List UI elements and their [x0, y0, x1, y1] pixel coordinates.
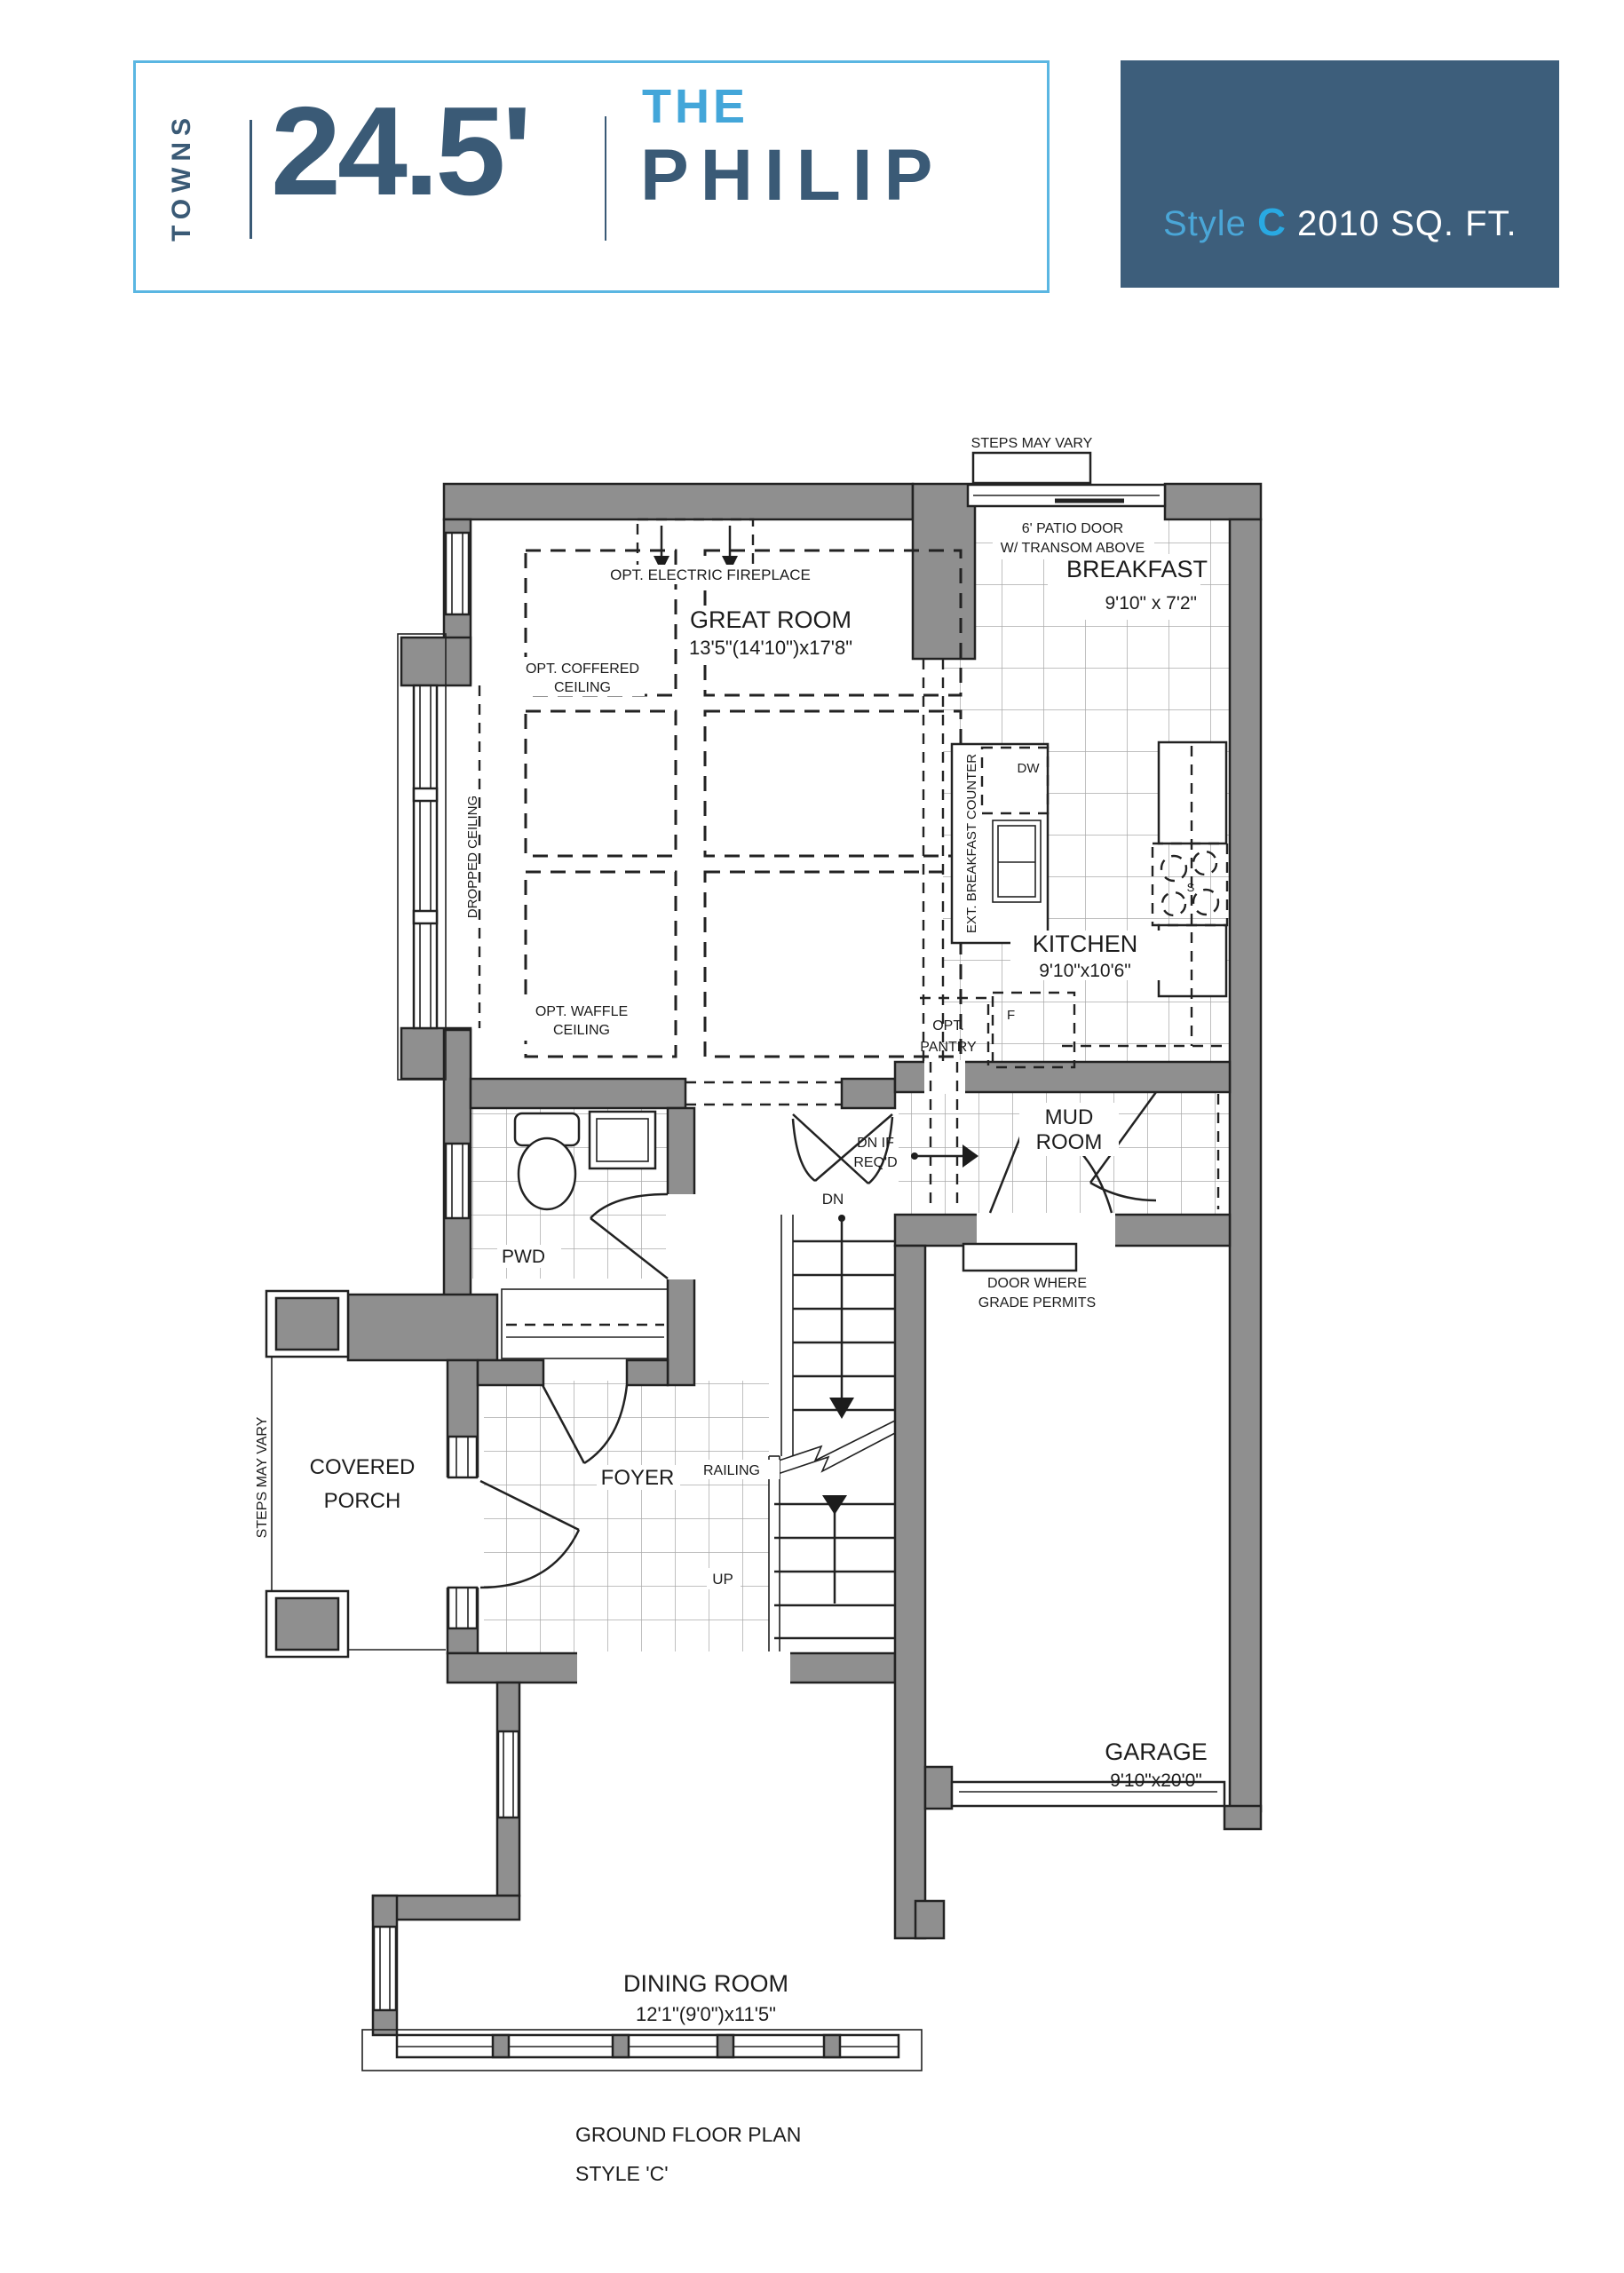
label-door-grade-1: DOOR WHERE — [987, 1276, 1087, 1291]
label-covered-porch-2: PORCH — [324, 1489, 401, 1513]
label-covered-porch-1: COVERED — [310, 1455, 416, 1479]
label-patio-door-2: W/ TRANSOM ABOVE — [1001, 541, 1145, 556]
label-dw: DW — [1018, 761, 1041, 776]
label-garage: GARAGE — [1105, 1738, 1208, 1765]
label-mud-room-1: MUD — [1045, 1105, 1094, 1129]
window — [446, 1144, 469, 1218]
dining-bay-windows — [362, 2030, 922, 2071]
label-stove: S — [1187, 881, 1195, 894]
label-dining-dims: 12'1"(9'0")x11'5" — [636, 2003, 776, 2025]
foyer-floor — [484, 1381, 769, 1653]
foyer-closet — [502, 1289, 668, 1358]
label-dining: DINING ROOM — [623, 1970, 788, 1997]
label-pwd: PWD — [502, 1247, 545, 1267]
label-foyer: FOYER — [601, 1466, 675, 1490]
label-opt-pantry-1: OPT. — [932, 1018, 964, 1034]
label-kitchen: KITCHEN — [1033, 931, 1138, 957]
bay-window — [414, 685, 437, 1028]
stair-break-line — [772, 1433, 895, 1476]
label-great-room-dims: 13'5"(14'10")x17'8" — [689, 637, 852, 659]
label-opt-coffered-1: OPT. COFFERED — [526, 661, 639, 677]
toilet — [515, 1113, 579, 1209]
staircase — [765, 1215, 895, 1651]
label-opt-coffered-2: CEILING — [554, 680, 611, 695]
label-kitchen-dims: 9'10"x10'6" — [1039, 961, 1131, 981]
window — [498, 1731, 519, 1818]
porch-pillar — [266, 1291, 348, 1357]
label-fridge: F — [1007, 1008, 1015, 1023]
label-breakfast-dims: 9'10" x 7'2" — [1105, 593, 1198, 614]
label-railing: RAILING — [703, 1463, 760, 1478]
pwd-sink — [590, 1112, 655, 1168]
steps-outline — [973, 453, 1090, 483]
patio-door — [968, 453, 1165, 506]
label-dropped-ceiling: DROPPED CEILING — [465, 796, 480, 918]
floor-plan: STEPS MAY VARY 6' PATIO DOOR W/ TRANSOM … — [0, 0, 1624, 2273]
label-great-room: GREAT ROOM — [690, 606, 852, 633]
railing — [769, 1456, 780, 1651]
window — [446, 533, 469, 614]
label-dn-if-reqd-2: REQ'D — [853, 1155, 897, 1170]
label-opt-pantry-2: PANTRY — [920, 1040, 977, 1055]
porch-pillar — [266, 1591, 348, 1657]
label-footer-1: GROUND FLOOR PLAN — [575, 2123, 801, 2146]
label-steps-top: STEPS MAY VARY — [971, 436, 1093, 451]
label-opt-waffle-2: CEILING — [553, 1023, 610, 1038]
page: { "header": { "series": "TOWNS", "width_… — [0, 0, 1624, 2273]
label-dn: DN — [822, 1191, 844, 1208]
label-up: UP — [712, 1571, 733, 1588]
label-dn-if-reqd-1: DN IF — [857, 1136, 894, 1151]
window — [374, 1927, 396, 2010]
label-patio-door-1: 6' PATIO DOOR — [1022, 521, 1123, 536]
label-steps-left: STEPS MAY VARY — [255, 1416, 270, 1538]
label-opt-waffle-1: OPT. WAFFLE — [535, 1004, 628, 1019]
label-mud-room-2: ROOM — [1036, 1130, 1103, 1154]
label-ext-counter: EXT. BREAKFAST COUNTER — [964, 754, 979, 933]
garage-landing — [963, 1244, 1076, 1271]
label-door-grade-2: GRADE PERMITS — [978, 1295, 1096, 1311]
label-footer-2: STYLE 'C' — [575, 2162, 669, 2185]
label-breakfast: BREAKFAST — [1066, 556, 1208, 582]
label-opt-fireplace: OPT. ELECTRIC FIREPLACE — [610, 566, 811, 583]
label-garage-dims: 9'10"x20'0" — [1110, 1770, 1202, 1791]
